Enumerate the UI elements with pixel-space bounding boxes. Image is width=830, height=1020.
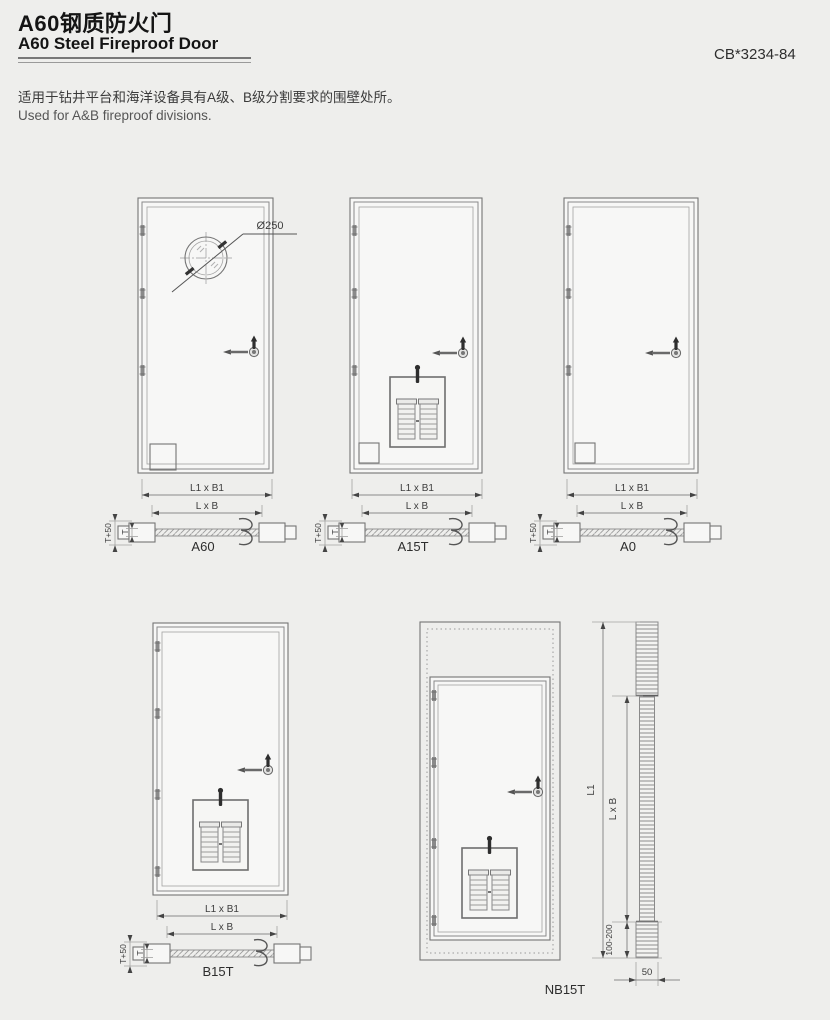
dim-label-t: T <box>120 529 130 534</box>
section-a0: L1 x B1 L x B T+50 T A0 <box>528 479 721 554</box>
dim-label-l1: L1 <box>586 784 597 796</box>
door-type-label: A60 <box>191 539 214 554</box>
dim-label-inner: L x B <box>196 501 219 512</box>
dim-label-outer: L1 x B1 <box>205 904 239 915</box>
dim-label-t50: T+50 <box>103 523 113 543</box>
door-type-label: NB15T <box>545 982 586 997</box>
dim-label-inner: L x B <box>621 501 644 512</box>
door-drawing-a60: Ø250 <box>138 198 297 473</box>
section-a60: L1 x B1 L x B T+50 T A60 <box>103 479 296 554</box>
louver-vent <box>390 365 445 447</box>
door-type-label: A15T <box>397 539 428 554</box>
dim-label-outer: L1 x B1 <box>190 483 224 494</box>
technical-drawing-canvas: Ø250 L1 x B1 L x B T+50 T A60 <box>0 0 830 1020</box>
dim-label-lxb: L x B <box>608 797 619 820</box>
catalog-page: A60钢质防火门 A60 Steel Fireproof Door CB*323… <box>0 0 830 1020</box>
dim-label-outer: L1 x B1 <box>400 483 434 494</box>
dim-label-sill: 100-200 <box>604 924 614 955</box>
section-b15t: L1 x B1 L x B T+50 T B15T <box>118 900 311 979</box>
door-drawing-nb15t <box>420 622 560 960</box>
dim-label-inner: L x B <box>211 922 234 933</box>
dim-label-t50: T+50 <box>313 523 323 543</box>
section-a15t: L1 x B1 L x B T+50 T A15T <box>313 479 506 554</box>
louver-vent <box>462 836 517 918</box>
dim-label-t50: T+50 <box>118 944 128 964</box>
dim-label-50: 50 <box>642 967 653 978</box>
dim-label-t: T <box>135 950 145 955</box>
door-type-label: B15T <box>202 964 233 979</box>
door-type-label: A0 <box>620 539 636 554</box>
nb15t-side-section: L1 L x B 100-200 50 NB15T <box>545 622 680 997</box>
door-drawing-b15t <box>153 623 288 895</box>
porthole-diameter-label: Ø250 <box>257 220 284 232</box>
dim-label-inner: L x B <box>406 501 429 512</box>
dim-label-t: T <box>330 529 340 534</box>
door-drawing-a0 <box>564 198 698 473</box>
door-drawing-a15t <box>350 198 482 473</box>
dim-label-t: T <box>545 529 555 534</box>
dim-label-outer: L1 x B1 <box>615 483 649 494</box>
louver-vent <box>193 788 248 870</box>
dim-label-t50: T+50 <box>528 523 538 543</box>
